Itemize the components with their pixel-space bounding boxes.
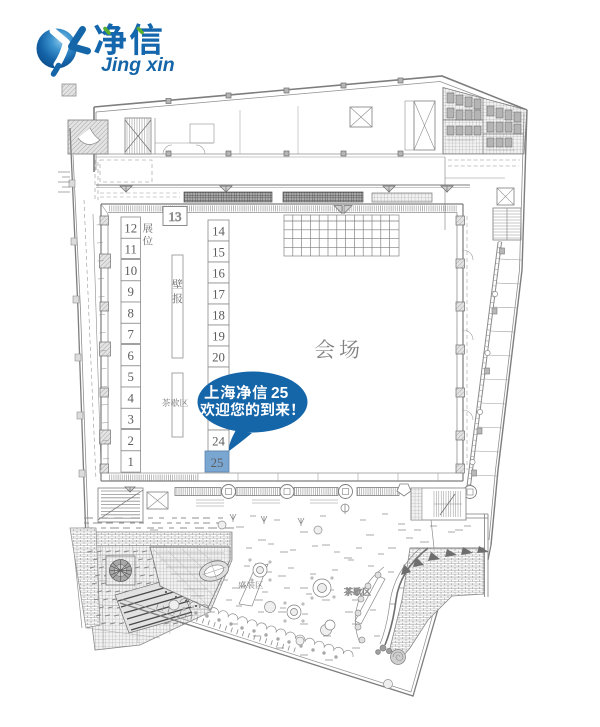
svg-text:13: 13 — [169, 210, 182, 224]
svg-text:20: 20 — [212, 351, 225, 365]
svg-text:4: 4 — [127, 391, 134, 405]
svg-text:5: 5 — [127, 370, 133, 384]
svg-text:14: 14 — [212, 225, 225, 239]
svg-text:15: 15 — [212, 246, 225, 260]
svg-text:3: 3 — [127, 413, 133, 427]
svg-text:11: 11 — [125, 243, 137, 257]
svg-text:Jing xin: Jing xin — [101, 54, 175, 76]
svg-text:25: 25 — [271, 385, 289, 402]
svg-text:25: 25 — [211, 456, 224, 470]
svg-text:17: 17 — [212, 288, 225, 302]
svg-text:19: 19 — [212, 330, 225, 344]
svg-text:8: 8 — [127, 306, 133, 320]
svg-text:2: 2 — [127, 434, 133, 448]
svg-text:16: 16 — [212, 267, 225, 281]
svg-text:24: 24 — [212, 435, 225, 449]
svg-text:1: 1 — [127, 455, 133, 469]
svg-text:6: 6 — [127, 349, 134, 363]
svg-text:10: 10 — [124, 264, 137, 278]
svg-text:9: 9 — [127, 285, 133, 299]
svg-text:7: 7 — [127, 328, 134, 342]
svg-text:18: 18 — [212, 309, 225, 323]
svg-text:12: 12 — [124, 221, 137, 235]
